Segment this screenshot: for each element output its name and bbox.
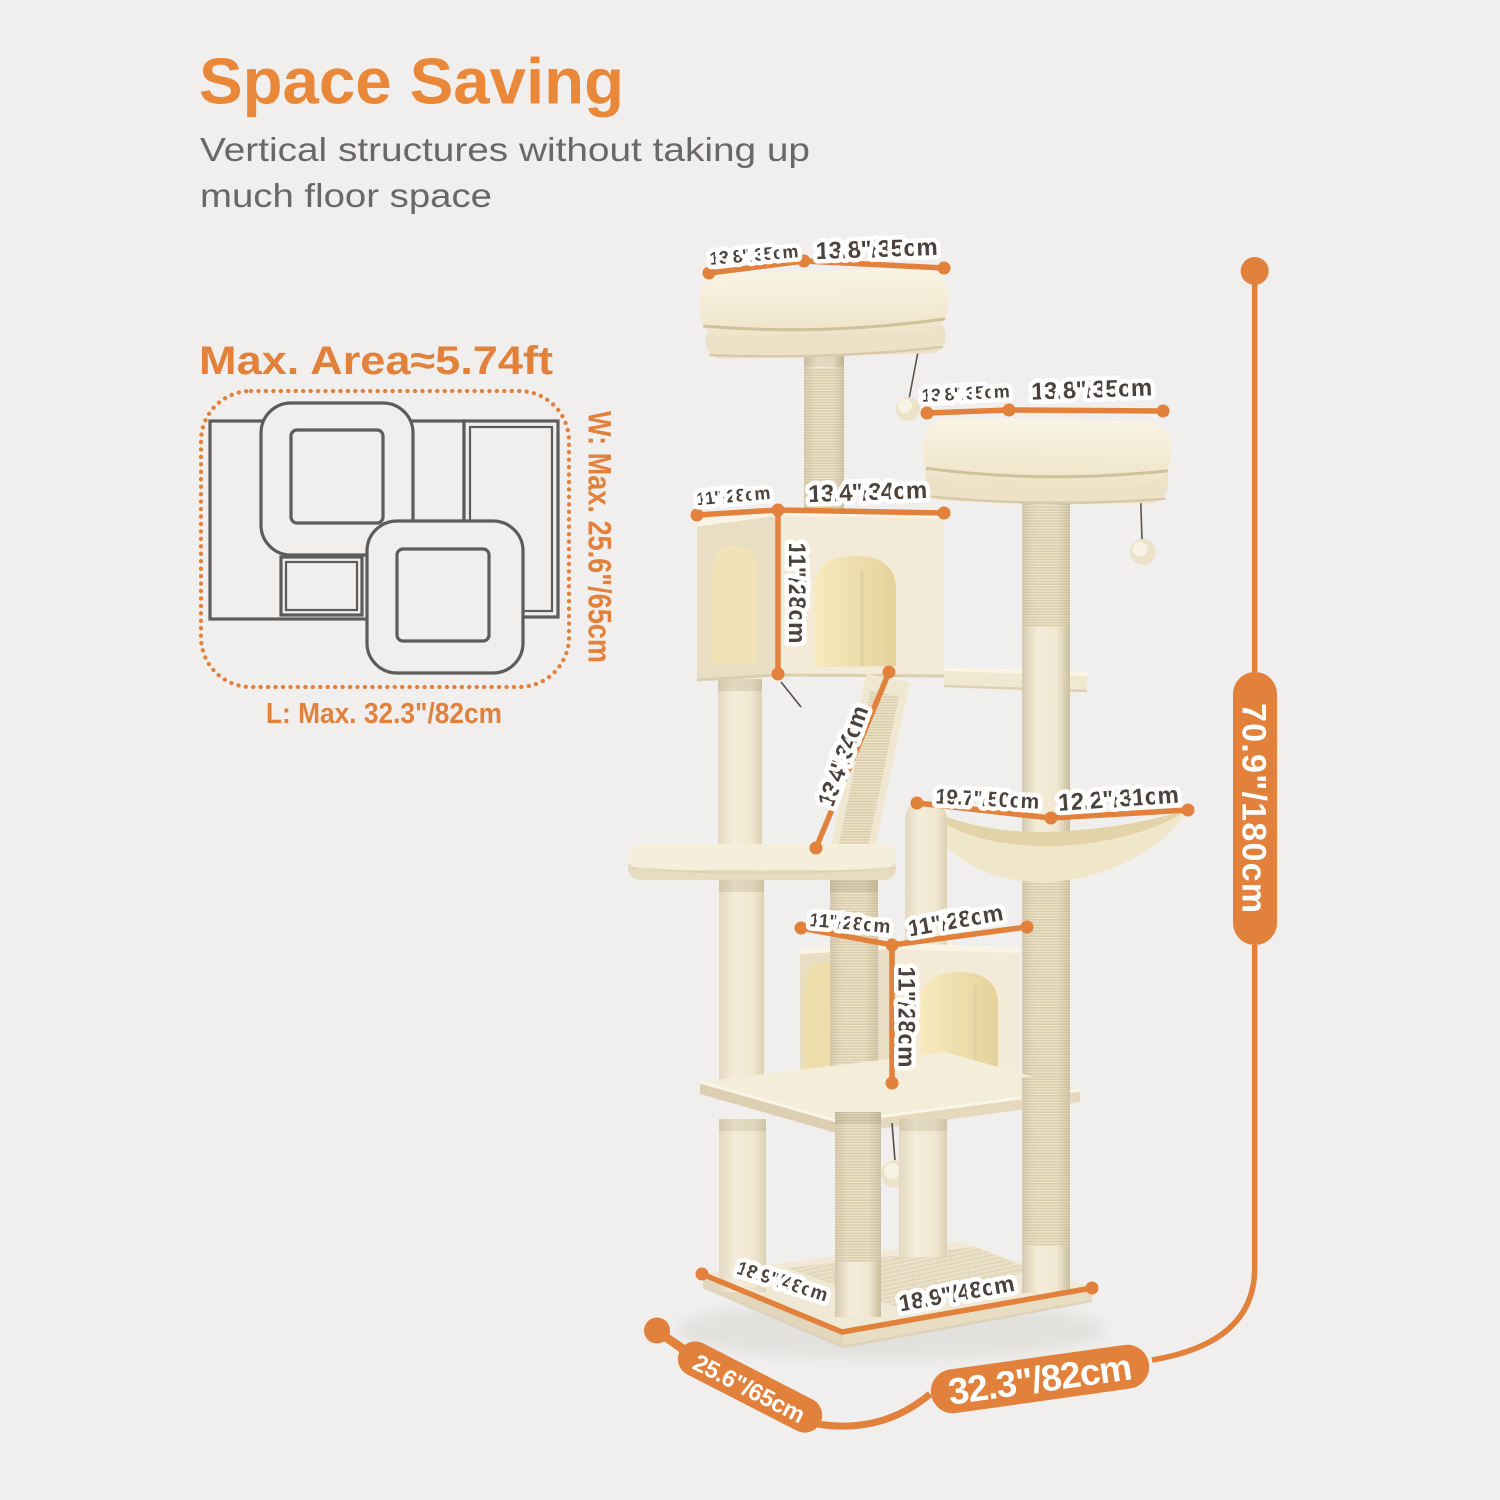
- svg-text:13.8"/35cm: 13.8"/35cm: [921, 381, 1010, 406]
- svg-text:11"/28cm: 11"/28cm: [893, 967, 920, 1068]
- svg-text:much floor space: much floor space: [200, 177, 492, 214]
- svg-text:13.4"/34cm: 13.4"/34cm: [808, 477, 928, 508]
- svg-text:13.8"/35cm: 13.8"/35cm: [815, 234, 938, 265]
- svg-text:W: Max. 25.6"/65cm: W: Max. 25.6"/65cm: [581, 411, 617, 663]
- svg-text:11"/28cm: 11"/28cm: [696, 483, 771, 509]
- svg-text:13.8"/35cm: 13.8"/35cm: [1031, 374, 1153, 405]
- svg-text:Space Saving: Space Saving: [199, 45, 624, 118]
- svg-text:Max. Area≈5.74ft: Max. Area≈5.74ft: [199, 339, 553, 383]
- svg-text:L: Max. 32.3"/82cm: L: Max. 32.3"/82cm: [266, 698, 502, 730]
- svg-text:11"/28cm: 11"/28cm: [783, 543, 810, 644]
- svg-text:Vertical structures without ta: Vertical structures without taking up: [200, 131, 810, 168]
- svg-text:70.9"/180cm: 70.9"/180cm: [1235, 703, 1273, 913]
